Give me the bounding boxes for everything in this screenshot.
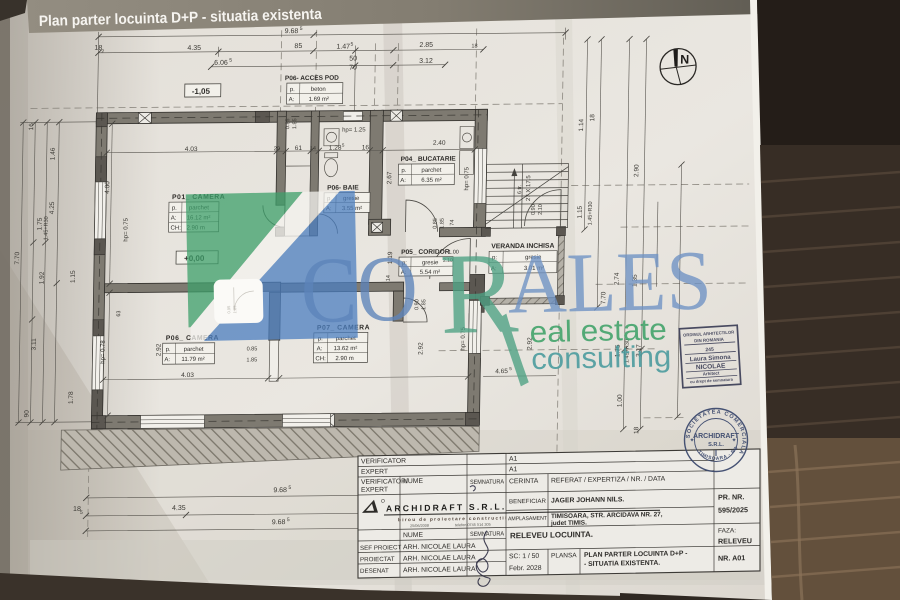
svg-text:0.90: 0.90 <box>531 204 537 215</box>
svg-text:1.47: 1.47 <box>336 44 350 51</box>
svg-text:CH:: CH: <box>171 226 182 232</box>
svg-text:parchet: parchet <box>421 168 441 174</box>
svg-text:1.69 m²: 1.69 m² <box>309 97 329 103</box>
svg-text:hp= 0.78: hp= 0.78 <box>100 340 106 364</box>
svg-text:1.85: 1.85 <box>440 218 446 229</box>
svg-text:ARH. NICOLAE LAURA: ARH. NICOLAE LAURA <box>403 554 476 562</box>
svg-text:0.85: 0.85 <box>433 218 439 229</box>
svg-text:p.: p. <box>172 206 177 212</box>
svg-text:A:: A: <box>400 178 406 184</box>
svg-text:ARCHIDRAFT S.R.L.: ARCHIDRAFT S.R.L. <box>386 501 506 513</box>
svg-text:CO: CO <box>300 237 419 343</box>
svg-text:25/06/2008: 25/06/2008 <box>410 524 429 528</box>
svg-text:judet TIMIS.: judet TIMIS. <box>550 519 587 527</box>
svg-text:0.85: 0.85 <box>247 346 258 352</box>
svg-text:P06- BAIE: P06- BAIE <box>327 184 359 191</box>
svg-text:4.35: 4.35 <box>187 45 201 52</box>
svg-text:gresie: gresie <box>422 260 439 266</box>
svg-text:74: 74 <box>450 219 456 225</box>
svg-text:JAGER JOHANN NILS.: JAGER JOHANN NILS. <box>551 496 624 504</box>
svg-text:SEF PROIECT: SEF PROIECT <box>360 544 401 552</box>
svg-text:A:: A: <box>164 357 170 363</box>
svg-text:18: 18 <box>633 426 640 434</box>
svg-text:2.90: 2.90 <box>633 164 640 177</box>
svg-text:13.62 m²: 13.62 m² <box>334 346 358 352</box>
svg-text:9.68: 9.68 <box>273 487 287 494</box>
svg-text:1.46: 1.46 <box>50 147 57 160</box>
svg-text:EXPERT: EXPERT <box>361 486 388 493</box>
svg-text:2: 2 <box>101 49 104 55</box>
svg-text:9.68: 9.68 <box>272 519 286 526</box>
svg-text:O: O <box>381 499 385 505</box>
svg-text:DESENAT: DESENAT <box>360 567 389 575</box>
svg-text:CERINTA: CERINTA <box>509 478 539 486</box>
svg-text:2.10: 2.10 <box>538 204 544 215</box>
svg-text:85: 85 <box>294 43 302 50</box>
svg-text:5: 5 <box>229 58 232 64</box>
svg-text:1.85: 1.85 <box>232 305 237 314</box>
svg-text:1.28: 1.28 <box>329 145 342 152</box>
svg-text:hp= 0.75: hp= 0.75 <box>464 166 470 190</box>
svg-text:70: 70 <box>349 65 357 72</box>
svg-text:0.85: 0.85 <box>285 118 291 129</box>
svg-text:0.95: 0.95 <box>226 305 231 314</box>
svg-text:1.85: 1.85 <box>421 299 427 310</box>
svg-text:RELEVEU: RELEVEU <box>718 536 752 546</box>
svg-text:hp= 0.75: hp= 0.75 <box>123 217 129 241</box>
svg-text:EXPERT: EXPERT <box>361 468 388 475</box>
svg-text:5: 5 <box>287 517 290 523</box>
svg-text:1.85: 1.85 <box>292 118 298 129</box>
svg-text:RELEVEU LOCUINTA.: RELEVEU LOCUINTA. <box>510 530 593 540</box>
svg-text:90: 90 <box>24 410 31 418</box>
svg-text:✦: ✦ <box>689 437 694 444</box>
svg-text:4.65: 4.65 <box>495 368 508 375</box>
svg-text:6.35 m²: 6.35 m² <box>421 178 441 184</box>
svg-text:BENEFICIAR: BENEFICIAR <box>509 499 547 506</box>
svg-text:4.03: 4.03 <box>181 372 194 379</box>
svg-text:p.: p. <box>166 347 171 353</box>
svg-text:595/2025: 595/2025 <box>718 505 748 515</box>
svg-text:beton: beton <box>311 87 326 93</box>
svg-text:2.40: 2.40 <box>433 140 446 147</box>
svg-text:A:: A: <box>171 216 177 222</box>
svg-text:telefon 0745 514 305: telefon 0745 514 305 <box>455 523 491 528</box>
svg-text:5: 5 <box>350 42 353 48</box>
svg-text:1.15: 1.15 <box>70 270 77 283</box>
svg-text:NR. A01: NR. A01 <box>718 553 745 562</box>
svg-text:p.: p. <box>290 87 295 93</box>
svg-text:1.78: 1.78 <box>68 391 75 404</box>
svg-text:11.79 m²: 11.79 m² <box>181 357 204 363</box>
svg-text:18: 18 <box>471 43 477 49</box>
svg-text:4.25: 4.25 <box>49 201 56 214</box>
svg-text:9.68: 9.68 <box>285 28 299 35</box>
svg-text:14: 14 <box>310 146 316 152</box>
svg-text:P04_ BUCATARIE: P04_ BUCATARIE <box>401 156 457 164</box>
svg-text:4.03: 4.03 <box>185 146 198 153</box>
svg-text:N: N <box>680 53 689 67</box>
svg-text:SC: 1 / 50: SC: 1 / 50 <box>509 553 539 561</box>
svg-text:S.R.L.: S.R.L. <box>708 442 724 448</box>
svg-text:4.00: 4.00 <box>104 181 111 194</box>
svg-text:2.92: 2.92 <box>418 342 425 355</box>
svg-text:245: 245 <box>705 347 714 354</box>
svg-text:✦: ✦ <box>731 437 736 444</box>
svg-text:PROIECTAT: PROIECTAT <box>360 556 395 564</box>
svg-text:P06- ACCES POD: P06- ACCES POD <box>285 75 339 82</box>
svg-text:1.00: 1.00 <box>617 394 624 407</box>
svg-text:5: 5 <box>300 26 303 32</box>
svg-text:1.14: 1.14 <box>578 118 585 131</box>
svg-text:7.70: 7.70 <box>14 251 21 264</box>
svg-text:50: 50 <box>349 56 357 63</box>
svg-text:4.35: 4.35 <box>172 505 186 512</box>
svg-text:SEMNATURA: SEMNATURA <box>470 478 505 486</box>
svg-text:SEMNATURA: SEMNATURA <box>470 530 505 538</box>
svg-text:CH:: CH: <box>315 356 326 362</box>
svg-text:5: 5 <box>288 485 291 491</box>
svg-text:VERIFICATOR: VERIFICATOR <box>361 458 406 466</box>
svg-text:hp= 1.25: hp= 1.25 <box>342 127 366 133</box>
svg-text:16: 16 <box>28 123 35 131</box>
svg-text:NUME: NUME <box>403 478 423 485</box>
svg-text:PLANSA: PLANSA <box>551 552 577 559</box>
svg-text:PR. NR.: PR. NR. <box>718 492 744 501</box>
svg-text:A:: A: <box>317 346 323 352</box>
svg-text:p.: p. <box>401 168 406 174</box>
svg-text:consulting: consulting <box>531 340 672 376</box>
svg-text:3.11: 3.11 <box>31 338 38 351</box>
svg-text:5: 5 <box>80 510 83 516</box>
svg-text:16: 16 <box>362 144 370 151</box>
svg-text:1.92: 1.92 <box>39 271 46 284</box>
svg-text:AMPLASAMENT: AMPLASAMENT <box>508 516 548 523</box>
svg-text:-1,05: -1,05 <box>192 87 211 96</box>
svg-text:5.54 m²: 5.54 m² <box>420 270 440 276</box>
svg-text:VERIFICATOR/: VERIFICATOR/ <box>361 478 408 486</box>
svg-text:2.67: 2.67 <box>386 171 393 184</box>
svg-text:6.06: 6.06 <box>214 60 228 67</box>
svg-text:A1: A1 <box>509 456 518 463</box>
svg-text:A1: A1 <box>509 466 518 473</box>
svg-text:1.85: 1.85 <box>246 357 257 363</box>
svg-text:ARH. NICOLAE LAURA: ARH. NICOLAE LAURA <box>403 566 476 574</box>
svg-text:18: 18 <box>589 114 596 122</box>
svg-text:FAZA:: FAZA: <box>718 527 736 534</box>
svg-text:- SITUATIA EXISTENTA.: - SITUATIA EXISTENTA. <box>584 560 660 568</box>
svg-text:1.45+R30: 1.45+R30 <box>588 201 594 225</box>
svg-text:parchet: parchet <box>184 347 204 353</box>
svg-text:2.92: 2.92 <box>156 343 163 356</box>
svg-text:ARH. NICOLAE LAURA: ARH. NICOLAE LAURA <box>403 543 476 551</box>
svg-text:63: 63 <box>116 310 122 316</box>
svg-text:2.90 m: 2.90 m <box>335 356 353 362</box>
svg-text:27 X 17.5: 27 X 17.5 <box>526 175 532 201</box>
svg-text:61: 61 <box>295 145 303 152</box>
svg-text:A:: A: <box>289 97 295 103</box>
svg-text:I: I <box>715 449 717 458</box>
svg-text:NUME: NUME <box>403 532 423 539</box>
svg-text:20: 20 <box>274 146 280 152</box>
svg-text:6 tr.: 6 tr. <box>517 184 523 194</box>
svg-text:Arhitect: Arhitect <box>703 370 720 376</box>
svg-text:1.45+R30: 1.45+R30 <box>43 216 49 240</box>
svg-text:2.85: 2.85 <box>419 42 433 49</box>
svg-text:3.12: 3.12 <box>419 58 433 65</box>
svg-text:Febr. 2028: Febr. 2028 <box>509 565 542 573</box>
svg-text:1.15: 1.15 <box>577 205 584 218</box>
